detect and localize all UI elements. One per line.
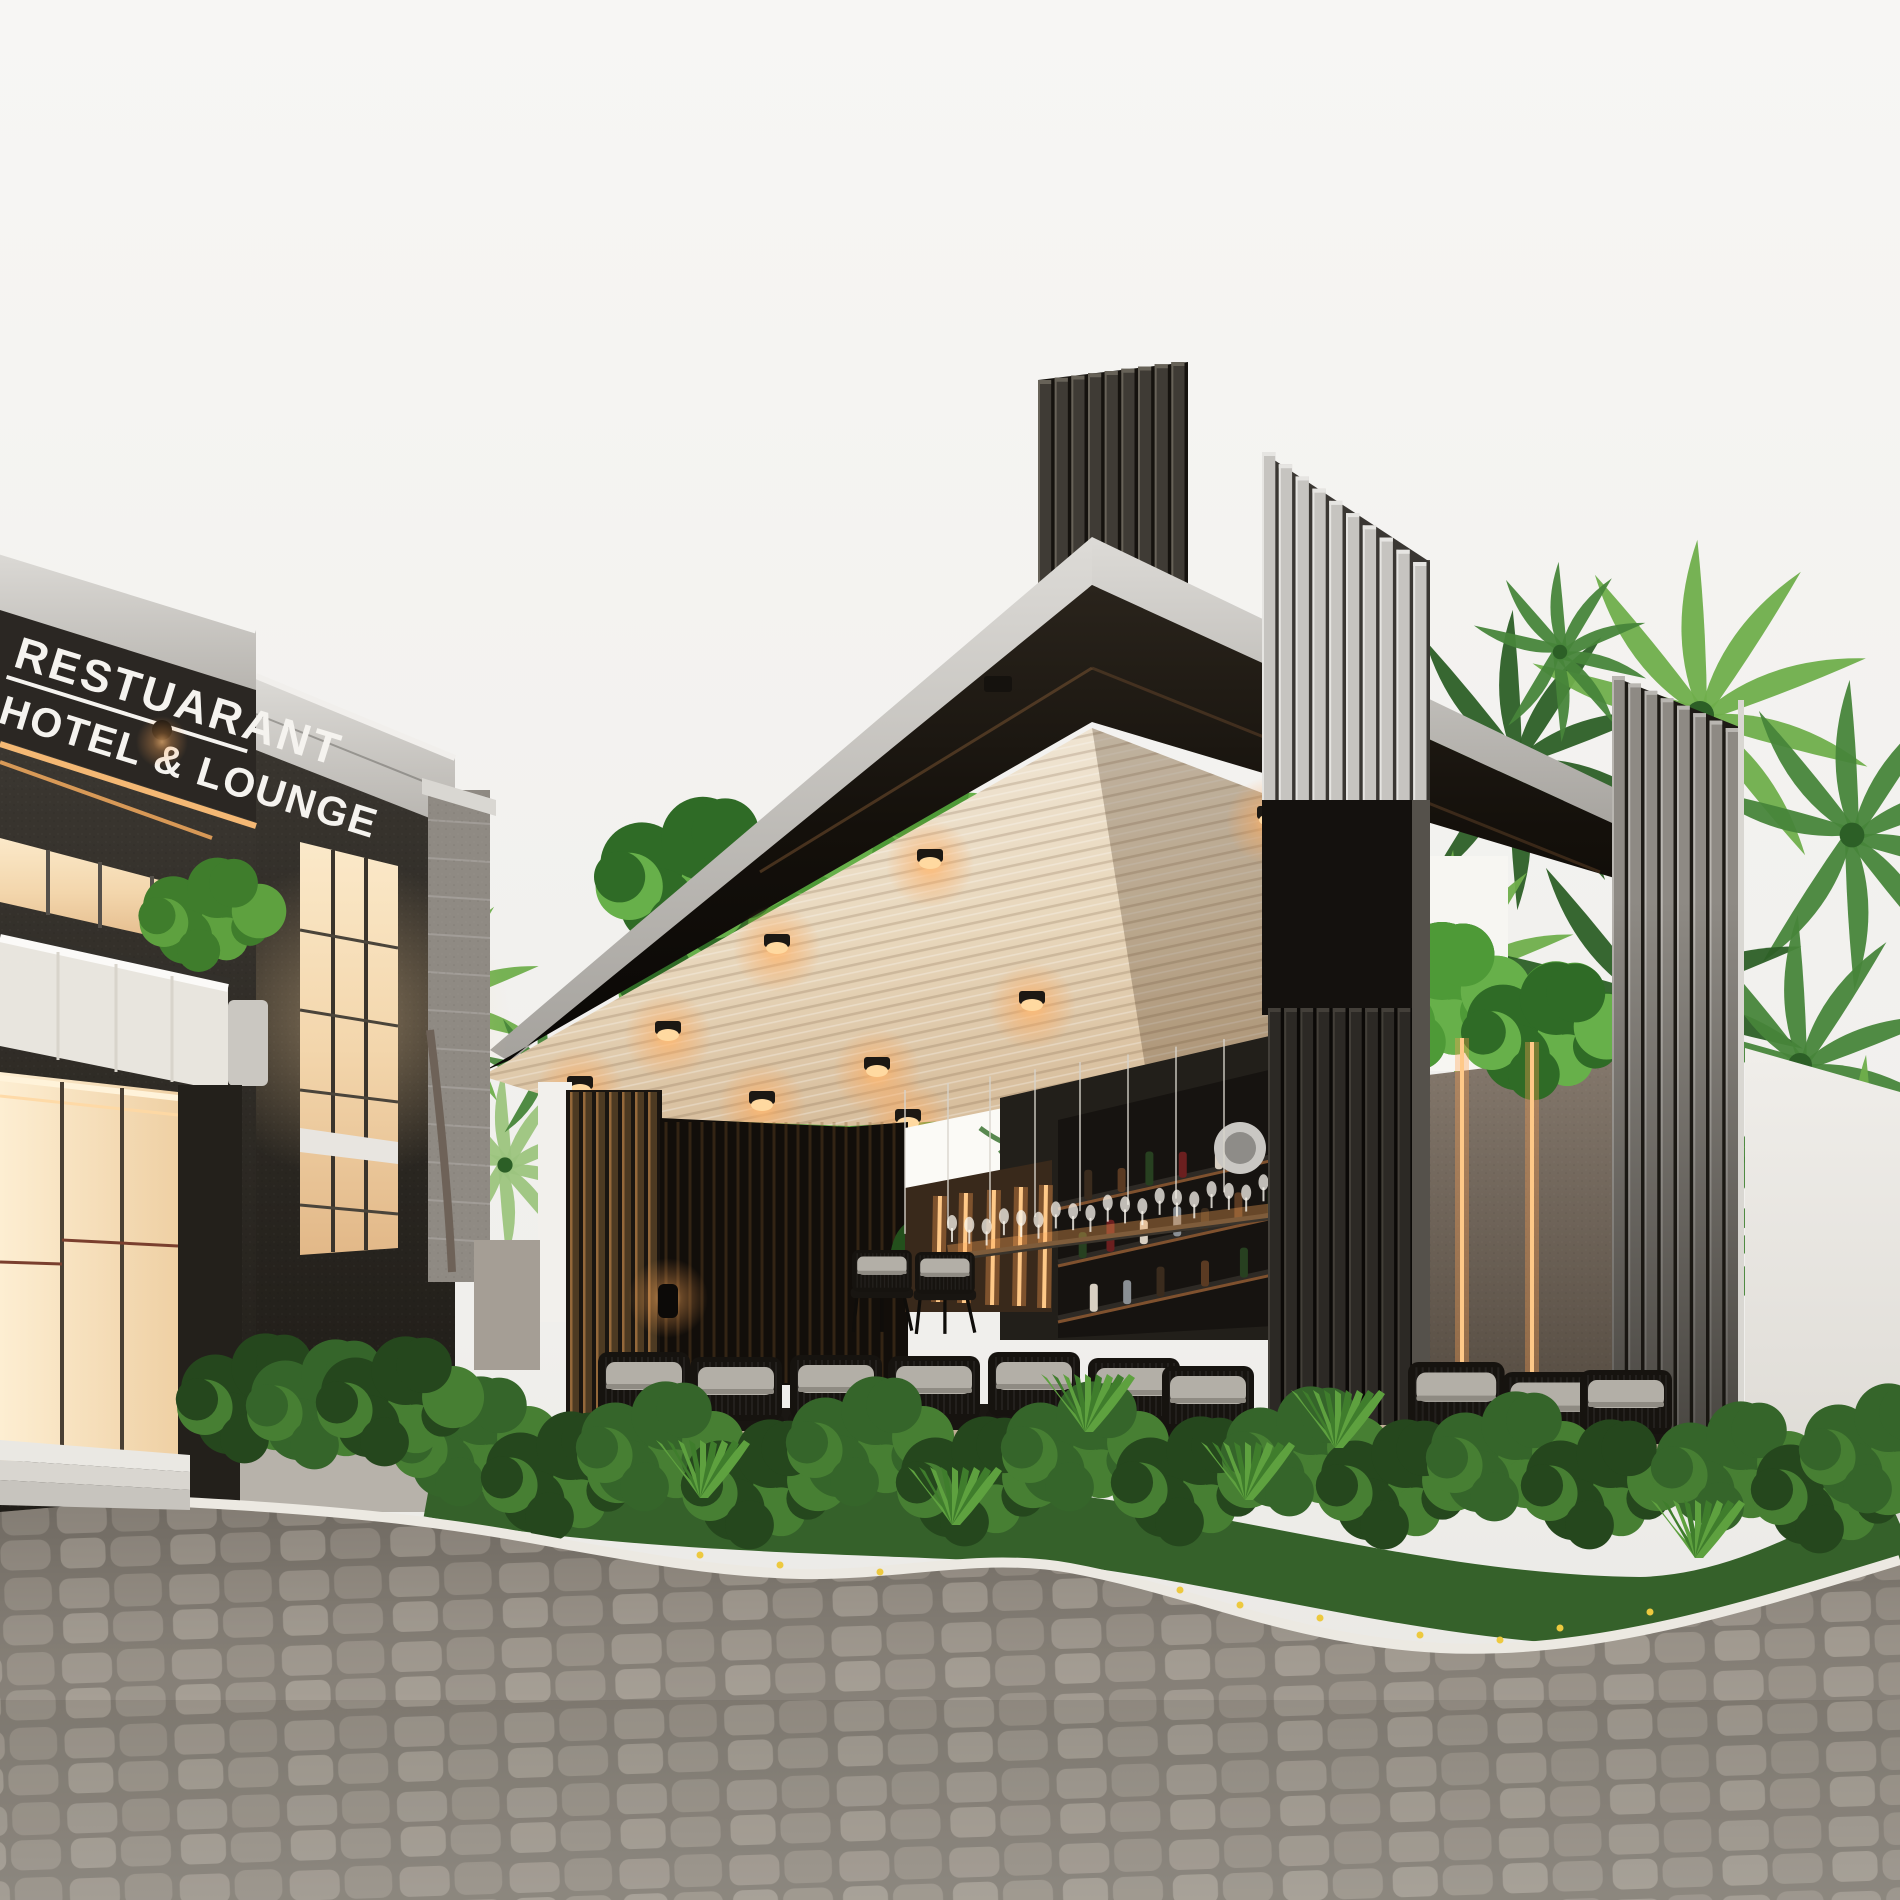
wall-sconce [628, 1258, 708, 1338]
tower-c-edge [1738, 700, 1744, 1470]
architectural-render: RESTUARANT HOTEL & LOUNGE [0, 0, 1900, 1900]
render-scene: RESTUARANT HOTEL & LOUNGE [0, 0, 1900, 1900]
fin-tower-c [1612, 676, 1742, 1478]
fin-tower-b-shadow [1262, 795, 1430, 1015]
entrance-glazing [0, 1072, 178, 1462]
alley-wall [474, 1240, 540, 1370]
vignette [0, 1700, 1900, 1900]
